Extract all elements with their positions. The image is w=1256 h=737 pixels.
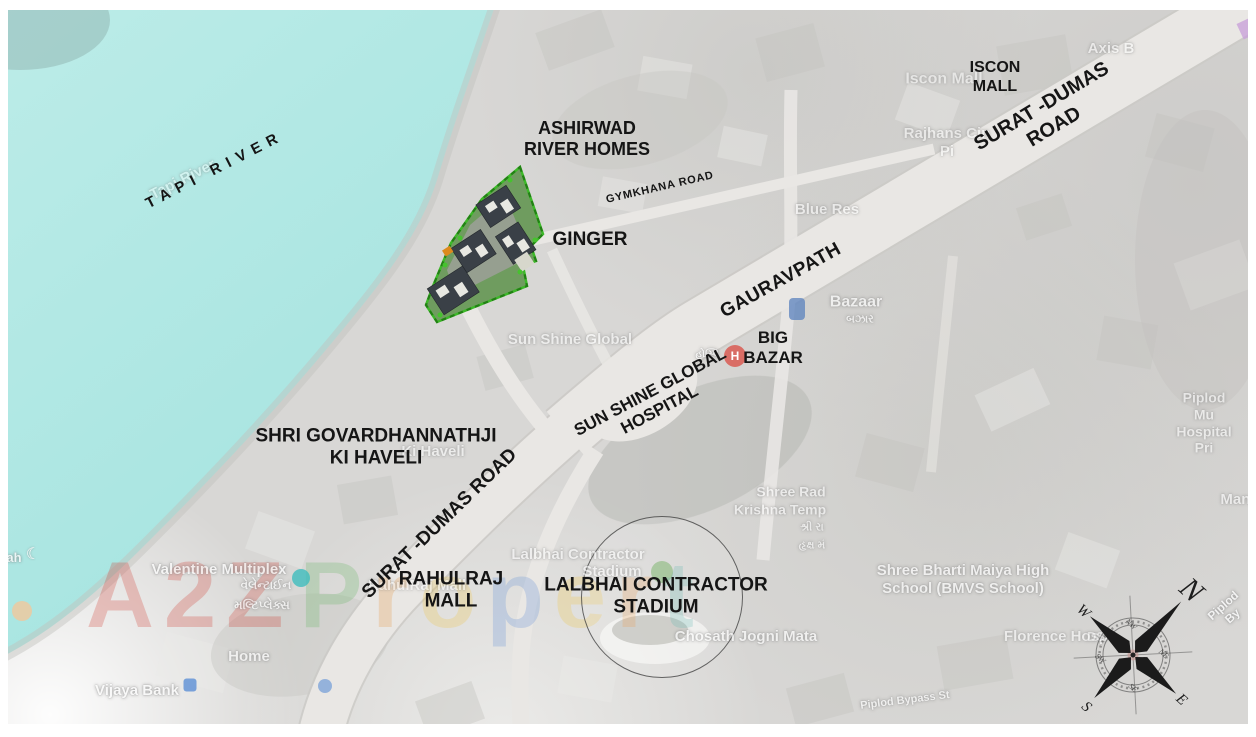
bg-label-krishna-gujarati-2: હૃક્ષ મં [799, 539, 826, 552]
bank-poi-icon [184, 679, 197, 692]
compass-label-ne: NE [1156, 646, 1170, 660]
label-rahulraj-mall: RAHULRAJ MALL [399, 569, 504, 614]
label-ashirwad-river-homes: ASHIRWAD RIVER HOMES [524, 118, 650, 160]
bg-label-vijaya-bank: Vijaya Bank [95, 682, 179, 700]
bg-label-lalbhai-contractor: Lalbhai Contractor [511, 546, 644, 564]
bg-label-piplod-hospital: Piplod Mu Hospital Pri [1176, 389, 1231, 456]
bg-label-bmvs-school: Shree Bharti Maiya High School (BMVS Sch… [877, 562, 1050, 598]
bg-label-mang: Mang [1220, 491, 1256, 509]
mosque-crescent-icon: ☾ [26, 544, 40, 564]
label-lalbhai-contractor-stadium: LALBHAI CONTRACTOR STADIUM [544, 575, 767, 620]
ashirwad-site-plan [410, 150, 570, 335]
compass-label-s: S [1078, 699, 1095, 716]
compass-needle-north [1129, 596, 1187, 658]
bg-label-ah: ah [6, 550, 21, 566]
bg-label-krishna-temp: Krishna Temp [734, 502, 826, 519]
bg-label-sunshine-global: Sun Shine Global [508, 331, 632, 349]
bg-label-valentine-multiplex: Valentine Multiplex [151, 561, 286, 579]
bg-label-home: Home [228, 648, 270, 666]
place-marker-icon [789, 298, 805, 320]
poi-dot-icon [12, 601, 32, 621]
map-canvas: A2Z Propert Tapi River Iscon Mall Axis B… [0, 0, 1256, 737]
compass-label-se: SE [1127, 682, 1140, 695]
bg-label-shree-rad: Shree Rad [756, 484, 825, 501]
bg-label-bazaar: Bazaar [830, 292, 882, 311]
watermark-part1: A2Z [86, 545, 294, 645]
compass-label-e: E [1172, 690, 1190, 709]
bg-label-blue-rest: Blue Res [795, 201, 859, 219]
poi-dot-icon [318, 679, 332, 693]
multiplex-poi-icon [292, 569, 310, 587]
hospital-marker-letter: H [731, 349, 740, 363]
bg-label-chosath-jogni-mata: Chosath Jogni Mata [675, 628, 818, 646]
compass-label-w: W [1073, 601, 1094, 622]
label-big-bazar: BIG BAZAR [743, 328, 803, 368]
label-iscon-mall: ISCON MALL [970, 59, 1021, 97]
bg-label-krishna-gujarati-1: શ્રી રા [800, 521, 824, 534]
location-map: A2Z Propert Tapi River Iscon Mall Axis B… [0, 0, 1256, 737]
label-govardhannathji-haveli: SHRI GOVARDHANNATHJI KI HAVELI [255, 426, 496, 471]
label-ginger: GINGER [553, 229, 628, 251]
compass-needle-east [1130, 651, 1182, 700]
bg-label-valentine-gujarati-2: મલ્ટિપ્લેક્સ [234, 598, 290, 612]
bg-label-bazaar-gujarati: બઝાર [846, 313, 874, 326]
bg-label-valentine-gujarati-1: વેલેન્ટાઈન [241, 578, 292, 592]
